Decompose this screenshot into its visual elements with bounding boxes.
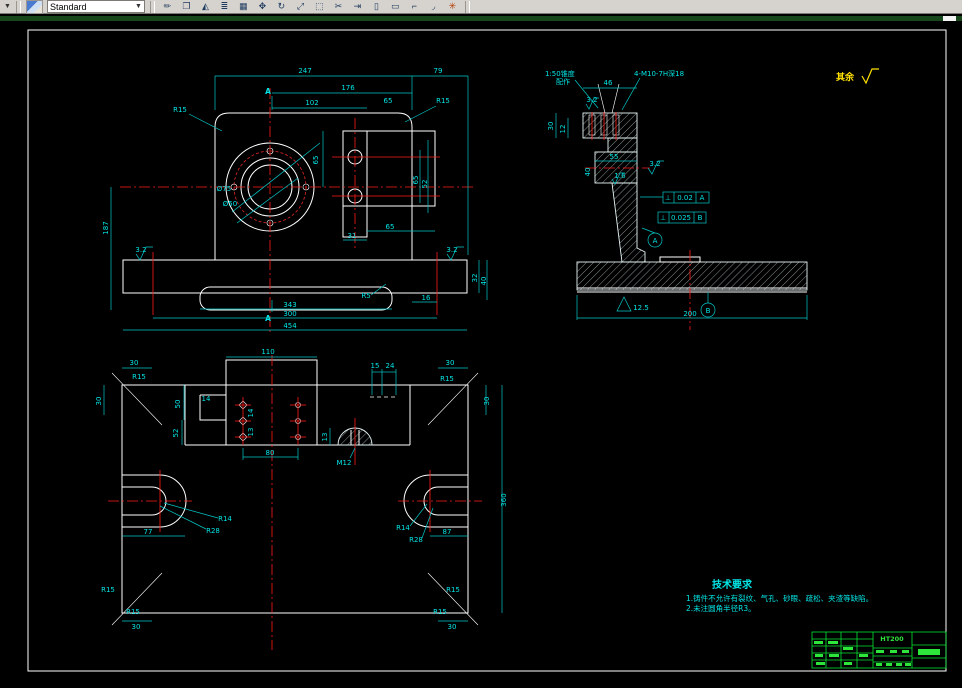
bottom-view-geometry xyxy=(112,360,478,625)
dim-label: 30 xyxy=(547,122,555,131)
feature-control-frame: ⊥ 0.02 A xyxy=(640,192,709,203)
gdt-symbol: ⊥ xyxy=(665,194,671,202)
dim-label: R15 xyxy=(433,608,447,616)
gdt-value: 0.025 xyxy=(671,214,691,222)
dim-label: R15 xyxy=(126,608,140,616)
gdt-datum: A xyxy=(700,194,705,202)
section-marker: A xyxy=(265,314,271,323)
dim-label: 247 xyxy=(298,67,311,75)
dim-label: 31 xyxy=(348,232,357,240)
dim-label: 16 xyxy=(422,294,431,302)
chevron-down-icon[interactable]: ▼ xyxy=(4,3,11,10)
bottom-view-centerlines xyxy=(108,355,482,650)
dim-label: Ø75 xyxy=(217,185,231,193)
title-block: HT200 xyxy=(812,632,946,668)
dim-label: 40 xyxy=(480,277,488,286)
gdt-symbol: ⊥ xyxy=(660,214,666,222)
dim-label: R5 xyxy=(361,292,370,300)
erase-icon: ✏ xyxy=(164,2,172,11)
dim-label: 77 xyxy=(144,528,153,536)
dim-label: 65 xyxy=(412,176,420,185)
dim-label: 87 xyxy=(443,528,452,536)
dim-label: R15 xyxy=(440,375,454,383)
dim-label: 79 xyxy=(434,67,443,75)
dim-label: 32 xyxy=(471,274,479,283)
toolbar-button-chamfer[interactable]: ⌐ xyxy=(406,0,423,13)
rotate-icon: ↻ xyxy=(278,2,286,11)
front-view-dimensions: 247 79 A 176 102 65 R15 R15 65 Ø75 Ø50 6… xyxy=(102,67,488,330)
front-view: 247 79 A 176 102 65 R15 R15 65 Ø75 Ø50 6… xyxy=(102,67,488,335)
dim-label: 12 xyxy=(559,125,567,134)
thread-note: 4-M10-7H深18 xyxy=(634,69,684,78)
taper-note2: 配作 xyxy=(556,77,570,86)
dim-label: 200 xyxy=(683,310,696,318)
dim-label: 65 xyxy=(312,156,320,165)
dim-label: 13 xyxy=(247,428,255,437)
dim-label: 55 xyxy=(610,153,619,161)
dim-label: R14 xyxy=(218,515,232,523)
explode-icon: ✳ xyxy=(449,2,457,11)
dim-label: 15 xyxy=(371,362,380,370)
toolbar-button-break[interactable]: ▭ xyxy=(387,0,404,13)
toolbar-button-explode[interactable]: ✳ xyxy=(444,0,461,13)
stretch-icon: ⬚ xyxy=(315,2,324,11)
dim-label: R15 xyxy=(132,373,146,381)
bottom-view: 110 15 24 30 R15 30 30 R15 30 360 50 52 … xyxy=(95,348,508,650)
dim-label: R28 xyxy=(409,536,423,544)
toolbar-button-erase[interactable]: ✏ xyxy=(159,0,176,13)
toolbar-button-trim[interactable]: ✂ xyxy=(330,0,347,13)
dim-label: 40 xyxy=(584,168,592,177)
dim-label: 52 xyxy=(421,180,429,189)
dim-label: 30 xyxy=(95,397,103,406)
dim-label: 52 xyxy=(172,429,180,438)
standard-style-combobox[interactable]: Standard ▼ xyxy=(47,0,145,13)
toolbar-button-copy[interactable]: ❐ xyxy=(178,0,195,13)
toolbar-button-extend[interactable]: ⇥ xyxy=(349,0,366,13)
dim-label: 454 xyxy=(283,322,297,330)
tech-req-line: 2.未注圆角半径R3。 xyxy=(686,603,756,613)
toolbar-button-stretch[interactable]: ⬚ xyxy=(311,0,328,13)
toolbar-separator xyxy=(465,1,470,13)
dim-label: R28 xyxy=(206,527,220,535)
dim-label: Ø50 xyxy=(223,200,237,208)
datum-label: A xyxy=(653,237,658,245)
combobox-value: Standard xyxy=(50,2,87,12)
dim-label: 65 xyxy=(384,97,393,105)
toolbar-separator xyxy=(16,1,21,13)
material-label: HT200 xyxy=(880,635,904,643)
dim-label: 102 xyxy=(305,99,318,107)
tech-req-line: 1.铸件不允许有裂纹、气孔、砂眼、疏松、夹渣等缺陷。 xyxy=(686,593,873,603)
chevron-down-icon: ▼ xyxy=(135,3,142,10)
sheet-border xyxy=(28,30,946,671)
tech-req-title: 技术要求 xyxy=(712,578,753,591)
dim-label: 46 xyxy=(604,79,613,87)
dim-label: R15 xyxy=(436,97,450,105)
drawing-area-top-strip xyxy=(0,16,962,21)
extend-icon: ⇥ xyxy=(354,2,362,11)
toolbar-button-array[interactable]: ▦ xyxy=(235,0,252,13)
dim-label: R14 xyxy=(396,524,410,532)
array-icon: ▦ xyxy=(239,2,248,11)
trim-icon: ✂ xyxy=(335,2,343,11)
rest-surface-note: 其余 xyxy=(836,69,879,83)
gdt-value: 0.02 xyxy=(677,194,693,202)
fillet-icon: ◞ xyxy=(432,2,436,11)
dim-label: 24 xyxy=(386,362,395,370)
dim-label: 176 xyxy=(341,84,355,92)
dim-label: 300 xyxy=(283,310,296,318)
copy-icon: ❐ xyxy=(182,2,190,11)
dim-label: 360 xyxy=(500,493,508,506)
dim-label: 14 xyxy=(247,408,255,417)
break-at-point-icon: ▯ xyxy=(374,2,379,11)
style-manager-icon[interactable] xyxy=(26,0,43,14)
datum-label: B xyxy=(706,307,711,315)
dim-label: 30 xyxy=(448,623,457,631)
toolbar-button-mirror[interactable]: ◭ xyxy=(197,0,214,13)
toolbar-button-fillet[interactable]: ◞ xyxy=(425,0,442,13)
dim-label: 30 xyxy=(446,359,455,367)
dim-label: 65 xyxy=(386,223,395,231)
gdt-datum: B xyxy=(698,214,703,222)
toolbar-button-offset[interactable]: ≣ xyxy=(216,0,233,13)
dim-label: 343 xyxy=(283,301,296,309)
feature-control-frame: ⊥ 0.025 B xyxy=(658,212,706,223)
dim-label: R15 xyxy=(101,586,115,594)
dim-label: 110 xyxy=(261,348,274,356)
taper-note: 1:50锥度 xyxy=(545,69,575,78)
dim-label: 50 xyxy=(174,400,182,409)
technical-requirements: 技术要求 1.铸件不允许有裂纹、气孔、砂眼、疏松、夹渣等缺陷。 2.未注圆角半径… xyxy=(686,578,873,613)
window-fragment xyxy=(943,16,956,21)
dim-label: 30 xyxy=(130,359,139,367)
toolbar-button-move[interactable]: ✥ xyxy=(254,0,271,13)
toolbar-button-rotate[interactable]: ↻ xyxy=(273,0,290,13)
front-view-geometry xyxy=(123,113,467,310)
dim-label: 30 xyxy=(132,623,141,631)
surface-finish-label: 12.5 xyxy=(633,304,649,312)
dim-label: 13 xyxy=(321,433,329,442)
toolbar-separator xyxy=(150,1,155,13)
dim-label: 187 xyxy=(102,221,110,234)
scale-icon: ⤢ xyxy=(297,2,304,11)
drawing-canvas[interactable]: 247 79 A 176 102 65 R15 R15 65 Ø75 Ø50 6… xyxy=(0,21,962,688)
toolbar: ▼ Standard ▼ ✏ ❐ ◭ ≣ ▦ ✥ ↻ ⤢ ⬚ ✂ ⇥ ▯ ▭ ⌐… xyxy=(0,0,962,14)
chamfer-icon: ⌐ xyxy=(412,2,417,11)
dim-label: 80 xyxy=(266,449,275,457)
offset-icon: ≣ xyxy=(221,2,229,11)
section-marker: A xyxy=(265,87,271,96)
dim-label: R15 xyxy=(173,106,187,114)
rest-note-label: 其余 xyxy=(836,71,855,83)
dim-label: 30 xyxy=(483,397,491,406)
bottom-view-dimensions: 110 15 24 30 R15 30 30 R15 30 360 50 52 … xyxy=(95,348,508,631)
thread-label: M12 xyxy=(337,459,352,467)
toolbar-button-break-at-point[interactable]: ▯ xyxy=(368,0,385,13)
section-view: 1:50锥度 配作 4-M10-7H深18 46 3.2 30 12 55 1.… xyxy=(545,69,807,330)
toolbar-button-scale[interactable]: ⤢ xyxy=(292,0,309,13)
dim-label: R15 xyxy=(446,586,460,594)
move-icon: ✥ xyxy=(259,2,267,11)
section-view-geometry xyxy=(577,84,807,292)
break-icon: ▭ xyxy=(391,2,400,11)
mirror-icon: ◭ xyxy=(202,2,209,11)
dim-label: 14 xyxy=(202,395,211,403)
